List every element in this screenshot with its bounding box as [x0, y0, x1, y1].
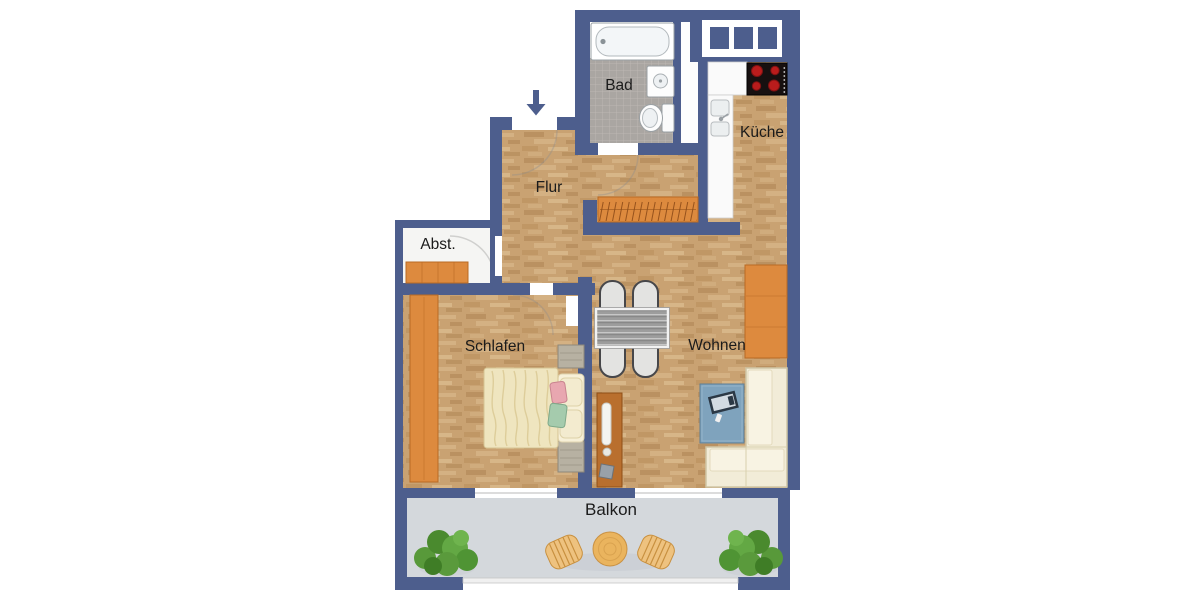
- balcony-railing: [463, 578, 738, 583]
- bedroom-wardrobe-icon: [410, 295, 438, 482]
- sideboard-icon: [597, 393, 622, 487]
- dining-table-icon: [596, 309, 668, 347]
- floor-plan-drawing: Bad Küche Flur Abst. Schlafen Wohnen Bal…: [0, 0, 1200, 600]
- bath-door-opening: [598, 143, 638, 155]
- storage-shelf-icon: [406, 262, 468, 283]
- storage-furniture: [406, 262, 468, 283]
- cushion-pink: [550, 381, 568, 404]
- stove-icon: [747, 63, 787, 95]
- room-label-flur: Flur: [536, 179, 563, 196]
- kitchen-counter: [708, 62, 747, 95]
- bedroom-door-leaf: [566, 296, 578, 326]
- balcony-table-icon: [593, 532, 627, 566]
- bedroom-door-opening: [530, 283, 553, 295]
- room-label-bad: Bad: [605, 77, 633, 94]
- tv-board-icon: [700, 384, 744, 443]
- room-label-abstellraum: Abst.: [420, 236, 455, 253]
- toilet-icon: [640, 104, 675, 132]
- bathtub-icon: [591, 23, 674, 60]
- hall-furniture: [598, 197, 698, 222]
- wash-basin-icon: [647, 66, 674, 97]
- nightstand-bottom: [558, 441, 584, 472]
- room-label-schlafen: Schlafen: [465, 338, 525, 355]
- room-label-kueche: Küche: [740, 124, 784, 141]
- room-label-balkon: Balkon: [585, 500, 637, 519]
- nightstand-top: [558, 345, 584, 368]
- kitchen-window-icon: [702, 20, 782, 57]
- room-label-wohnen: Wohnen: [688, 337, 745, 354]
- cushion-green: [548, 403, 568, 428]
- highboard-icon: [745, 265, 787, 358]
- entrance-door-opening: [512, 117, 557, 130]
- storage-door-opening: [495, 236, 502, 276]
- floor-plan: Bad Küche Flur Abst. Schlafen Wohnen Bal…: [0, 0, 1200, 600]
- entrance-arrow-icon: [527, 90, 546, 116]
- double-bed-icon: [484, 368, 584, 448]
- coat-wardrobe-icon: [598, 197, 698, 222]
